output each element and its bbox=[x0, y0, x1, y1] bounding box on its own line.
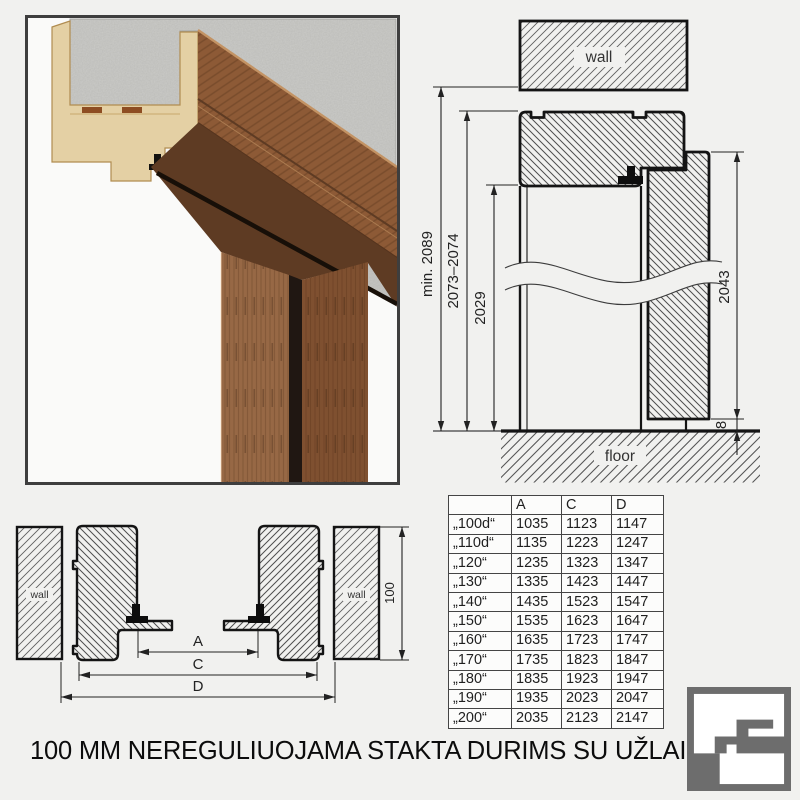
table-row: „140“143515231547 bbox=[449, 592, 664, 611]
table-cell: 1947 bbox=[612, 670, 664, 689]
floor-label: floor bbox=[605, 448, 635, 465]
table-cell: „120“ bbox=[449, 554, 512, 573]
table-header-c: C bbox=[562, 496, 612, 515]
table-row: „110d“113512231247 bbox=[449, 534, 664, 553]
table-row: „180“183519231947 bbox=[449, 670, 664, 689]
wall-right-label: wall bbox=[346, 589, 365, 601]
wall-block-section: wall bbox=[520, 21, 687, 90]
table-cell: 1747 bbox=[612, 631, 664, 650]
table-cell: 1735 bbox=[512, 651, 562, 670]
mdf-groove-slot bbox=[82, 107, 102, 113]
frame-corner-3d-render bbox=[25, 15, 400, 485]
table-header-a: A bbox=[512, 496, 562, 515]
frame-jamb-right-profile bbox=[224, 526, 323, 660]
table-cell: „140“ bbox=[449, 592, 512, 611]
table-cell: „130“ bbox=[449, 573, 512, 592]
vertical-section-drawing: wall floor bbox=[420, 8, 792, 498]
table-cell: 1147 bbox=[612, 515, 664, 534]
table-cell: 1347 bbox=[612, 554, 664, 573]
table-cell: 1323 bbox=[562, 554, 612, 573]
table-row: „100d“103511231147 bbox=[449, 515, 664, 534]
table-cell: 1847 bbox=[612, 651, 664, 670]
dim-a-label: A bbox=[193, 633, 203, 650]
table-cell: 1435 bbox=[512, 592, 562, 611]
table-cell: 1623 bbox=[562, 612, 612, 631]
table-cell: 1423 bbox=[562, 573, 612, 592]
jamb-seal-strip bbox=[289, 275, 302, 482]
table-row: „170“173518231847 bbox=[449, 651, 664, 670]
dim-frame-outer-height: 2073–2074 bbox=[445, 233, 462, 308]
dim-door-leaf-height: 2043 bbox=[716, 270, 733, 303]
frame-corner-3d-svg bbox=[25, 15, 400, 485]
dim-c-label: C bbox=[193, 656, 204, 673]
wood-vertical-jamb bbox=[221, 252, 368, 482]
table-row: „120“123513231347 bbox=[449, 554, 664, 573]
table-row: „190“193520232047 bbox=[449, 689, 664, 708]
table-cell: 2047 bbox=[612, 689, 664, 708]
table-cell: „180“ bbox=[449, 670, 512, 689]
table-cell: 1447 bbox=[612, 573, 664, 592]
floor-section: floor bbox=[433, 431, 760, 483]
table-cell: „160“ bbox=[449, 631, 512, 650]
table-cell: 1247 bbox=[612, 534, 664, 553]
page-title: 100 MM NEREGULIUOJAMA STAKTA DURIMS SU U… bbox=[30, 737, 780, 766]
table-cell: „190“ bbox=[449, 689, 512, 708]
dim-d-label: D bbox=[193, 678, 204, 695]
table-cell: „170“ bbox=[449, 651, 512, 670]
table-cell: 1235 bbox=[512, 554, 562, 573]
frame-depth-dimension: 100 bbox=[380, 527, 409, 660]
table-header-row: A C D bbox=[449, 496, 664, 515]
table-row: „150“153516231647 bbox=[449, 612, 664, 631]
table-cell: „100d“ bbox=[449, 515, 512, 534]
wall-label: wall bbox=[585, 49, 613, 66]
table-cell: „200“ bbox=[449, 709, 512, 728]
table-cell: 1223 bbox=[562, 534, 612, 553]
table-cell: 2023 bbox=[562, 689, 612, 708]
table-cell: 1535 bbox=[512, 612, 562, 631]
table-header-size bbox=[449, 496, 512, 515]
table-cell: „110d“ bbox=[449, 534, 512, 553]
table-cell: „150“ bbox=[449, 612, 512, 631]
mdf-groove-slot bbox=[122, 107, 142, 113]
table-cell: 1647 bbox=[612, 612, 664, 631]
table-cell: 1635 bbox=[512, 631, 562, 650]
wall-right-section: wall bbox=[334, 527, 379, 659]
table-header-d: D bbox=[612, 496, 664, 515]
logo-block bbox=[687, 753, 720, 791]
table-cell: 1123 bbox=[562, 515, 612, 534]
table-cell: 1923 bbox=[562, 670, 612, 689]
table-row: „130“133514231447 bbox=[449, 573, 664, 592]
table-cell: 1335 bbox=[512, 573, 562, 592]
table-cell: 1835 bbox=[512, 670, 562, 689]
table-cell: 1723 bbox=[562, 631, 612, 650]
size-table: A C D „100d“103511231147 „110d“113512231… bbox=[448, 495, 664, 729]
producer-logo bbox=[687, 687, 791, 791]
table-row: „160“163517231747 bbox=[449, 631, 664, 650]
frame-jamb-left-profile bbox=[73, 526, 172, 660]
table-cell: 1823 bbox=[562, 651, 612, 670]
dim-min-opening-height: min. 2089 bbox=[420, 231, 436, 297]
table-cell: 1035 bbox=[512, 515, 562, 534]
dim-floor-gap: 8 bbox=[713, 421, 730, 429]
dim-clear-opening-height: 2029 bbox=[472, 291, 489, 324]
table-cell: 2035 bbox=[512, 709, 562, 728]
table-row: „200“203521232147 bbox=[449, 709, 664, 728]
table-cell: 2123 bbox=[562, 709, 612, 728]
table-cell: 1935 bbox=[512, 689, 562, 708]
table-cell: 1547 bbox=[612, 592, 664, 611]
horizontal-section-drawing: wall wall 100 bbox=[8, 512, 438, 712]
wall-left-label: wall bbox=[29, 589, 48, 601]
table-cell: 2147 bbox=[612, 709, 664, 728]
table-cell: 1523 bbox=[562, 592, 612, 611]
dim-frame-depth: 100 bbox=[382, 582, 397, 604]
table-cell: 1135 bbox=[512, 534, 562, 553]
wall-left-section: wall bbox=[17, 527, 62, 659]
